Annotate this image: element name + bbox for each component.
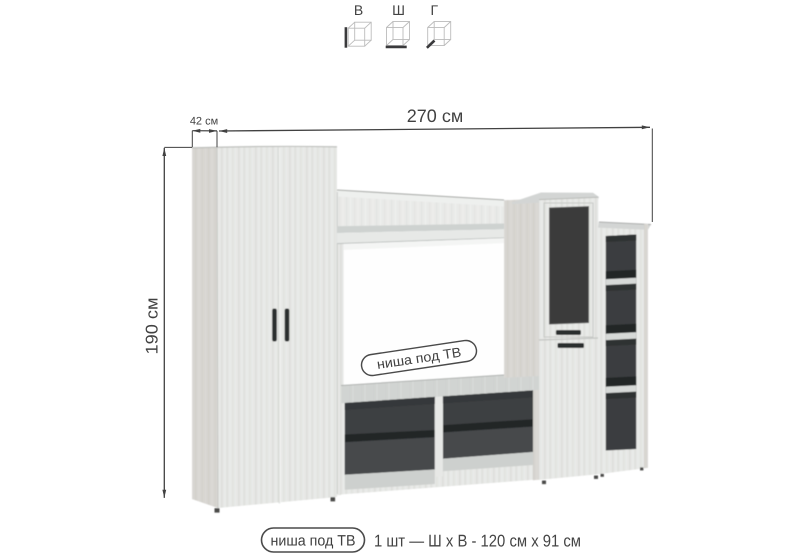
svg-text:190 см: 190 см (143, 298, 162, 355)
svg-text:Ш: Ш (392, 2, 405, 18)
svg-text:Г: Г (431, 2, 439, 18)
svg-text:42 см: 42 см (190, 116, 218, 128)
svg-text:1 шт — Ш х В - 120 см х 91 см: 1 шт — Ш х В - 120 см х 91 см (374, 532, 581, 551)
svg-text:270 см: 270 см (407, 106, 463, 126)
svg-text:В: В (354, 2, 363, 18)
svg-text:ниша под ТВ: ниша под ТВ (271, 533, 356, 550)
